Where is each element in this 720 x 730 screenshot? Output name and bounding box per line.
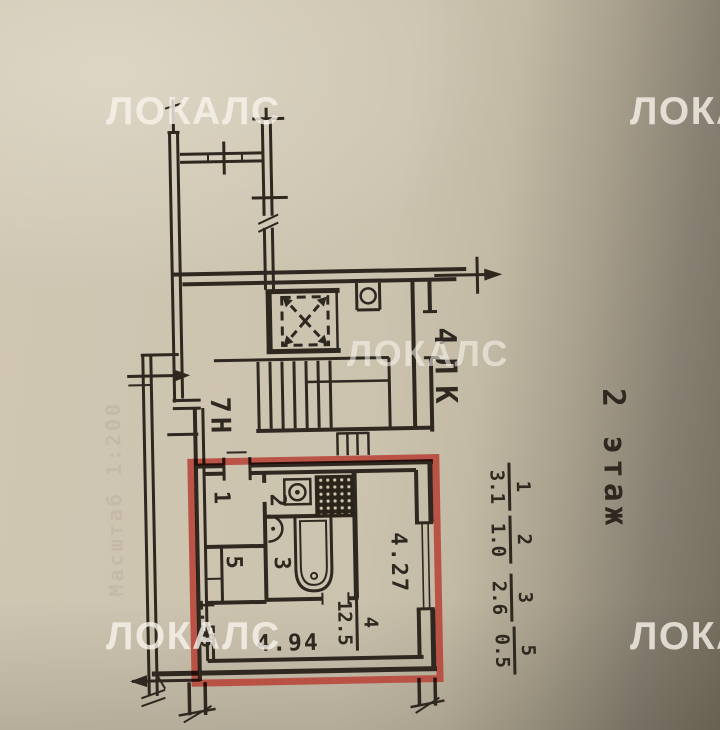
axis-arrow-right-icon (434, 256, 503, 294)
bottom-stub-right (410, 677, 445, 713)
room5-label: 5 (222, 555, 245, 569)
premises-label: 7Н (205, 396, 234, 437)
area-fraction-5: 5 0.5 (492, 626, 538, 675)
area-fraction-2: 2 1.0 (487, 515, 533, 564)
bottom-stub-left (178, 682, 216, 723)
sink-icon (268, 516, 283, 542)
fraction-den: 0.5 (492, 632, 512, 669)
top-wall (172, 269, 466, 285)
shaft-inner-wall (180, 141, 264, 176)
fraction-den: 3.1 (487, 469, 507, 506)
garbage-chute-icon (356, 283, 380, 310)
fraction-num: 3 (514, 589, 534, 605)
fraction-den: 2.6 (489, 580, 509, 617)
fraction-num: 2 (513, 531, 533, 547)
floor-label: 2 этаж (596, 388, 631, 531)
shaft-right-wall (250, 107, 289, 290)
watermark: ЛОКАЛС (106, 617, 281, 656)
floorplan-photo: 7Н 4ЛК 2 этаж 1 2 3 5 4.27 1.56 4.94 4 1… (0, 0, 720, 730)
fraction-num: 5 (517, 642, 537, 658)
watermark: ЛОКАЛС (630, 92, 720, 131)
room2-label: 2 (265, 493, 288, 507)
shaft-left-wall (165, 99, 188, 402)
vent-shaft-icon (316, 476, 353, 516)
watermark: ЛОКАЛС (630, 617, 720, 656)
bathtub-icon (295, 517, 332, 592)
scale-note: Масштаб 1:200 (101, 399, 129, 599)
window-icon (422, 523, 430, 609)
area-fraction-1: 1 3.1 (486, 462, 532, 511)
room3-label: 3 (270, 556, 293, 570)
area-fraction-3: 3 2.6 (489, 573, 535, 622)
room4-area: 12.5 (334, 599, 354, 647)
watermark: ЛОКАЛС (347, 336, 509, 372)
dimension-width: 4.27 (386, 532, 410, 593)
room1-label: 1 (209, 490, 232, 504)
elevator-icon (266, 288, 341, 353)
watermark: ЛОКАЛС (106, 92, 281, 131)
fraction-den: 1.0 (488, 522, 508, 559)
room4-area-fraction: 4 12.5 (334, 594, 380, 651)
room4-number: 4 (359, 614, 379, 630)
apartment-right-wall (414, 462, 436, 669)
fraction-num: 1 (512, 478, 532, 494)
